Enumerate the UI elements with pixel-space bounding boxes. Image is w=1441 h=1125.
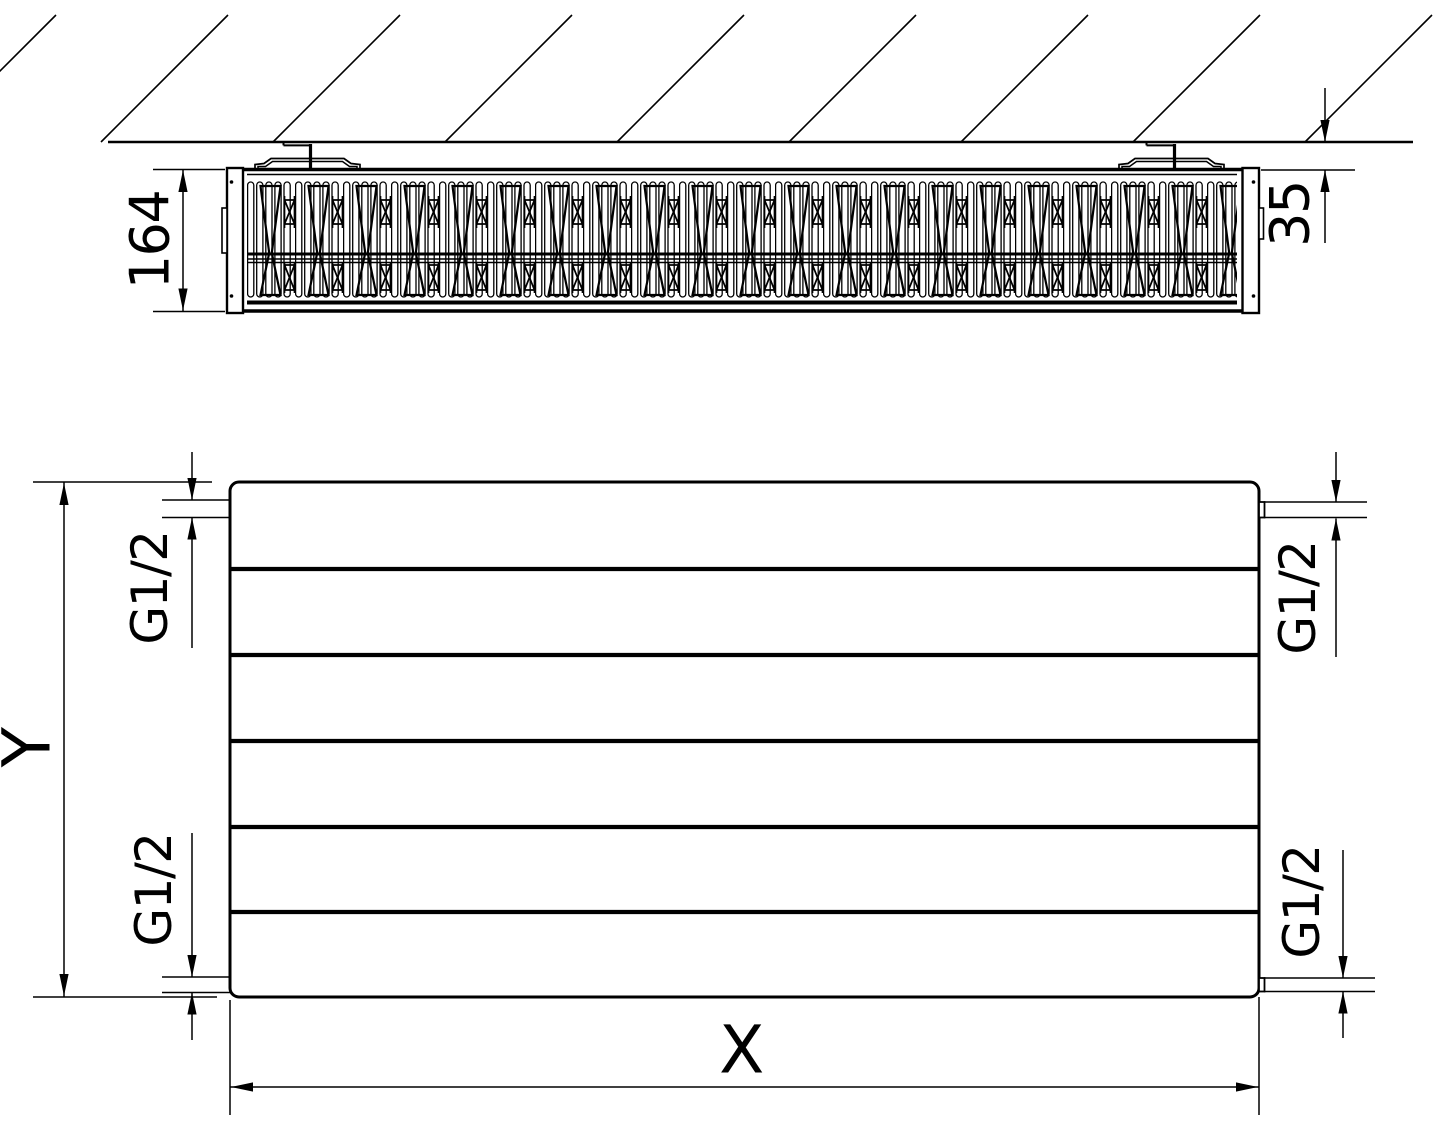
arrowhead-down (178, 289, 187, 311)
connection-dim-top-right: G1/2 (1264, 452, 1367, 657)
height-dimension-label: Y (0, 726, 66, 768)
arrowhead-down (187, 478, 196, 500)
dimension-width-x: X (230, 997, 1259, 1115)
convector-fins (247, 176, 1237, 300)
dimension-wall-clearance: 35 (1259, 88, 1356, 247)
arrowhead-down (1331, 480, 1340, 502)
wall-section-hatching (0, 15, 1432, 142)
connection-dim-bottom-left: G1/2 (125, 833, 230, 1040)
left-wall-bracket (255, 142, 360, 170)
top-right-pipe-stub (1259, 502, 1265, 518)
radiator-technical-drawing: 164 35 Y X G1/2 (0, 0, 1441, 1125)
thread-label-bottom-left: G1/2 (125, 833, 183, 946)
thread-label-top-right: G1/2 (1269, 541, 1327, 654)
radiator-front-view (230, 482, 1265, 997)
left-side-tab (222, 208, 227, 253)
hatch-lines (0, 15, 1432, 142)
width-dimension-label: X (719, 1012, 763, 1089)
radiator-top-view (222, 168, 1264, 313)
arrowhead-up (59, 483, 68, 505)
left-end-plate (227, 168, 243, 313)
wall-clearance-label: 35 (1259, 181, 1322, 247)
connection-dim-bottom-right: G1/2 (1264, 845, 1375, 1038)
right-end-plate (1243, 168, 1260, 313)
technical-drawing-page: 164 35 Y X G1/2 (0, 0, 1441, 1125)
connection-ticks (1264, 502, 1367, 518)
arrowhead-down (1320, 120, 1329, 142)
dimension-depth: 164 (119, 170, 226, 312)
dimension-height-y: Y (0, 482, 217, 997)
thread-label-bottom-right: G1/2 (1273, 845, 1331, 958)
connection-ticks (1264, 978, 1375, 992)
arrowhead-down (187, 955, 196, 977)
connection-ticks (162, 500, 230, 518)
arrowhead-up (1320, 170, 1329, 192)
right-wall-bracket (1119, 142, 1224, 170)
arrowhead-up (178, 170, 187, 192)
arrowhead-up (1331, 519, 1340, 541)
arrowhead-left (231, 1082, 253, 1091)
arrowhead-right (1236, 1082, 1258, 1091)
connection-ticks (162, 977, 230, 993)
arrowhead-down (59, 974, 68, 996)
arrowhead-up (1338, 992, 1347, 1014)
arrowhead-up (187, 993, 196, 1015)
thread-label-top-left: G1/2 (121, 531, 179, 644)
depth-dimension-label: 164 (119, 191, 182, 290)
arrowhead-up (187, 518, 196, 540)
bottom-right-pipe-stub (1259, 978, 1265, 992)
arrowhead-down (1338, 956, 1347, 978)
